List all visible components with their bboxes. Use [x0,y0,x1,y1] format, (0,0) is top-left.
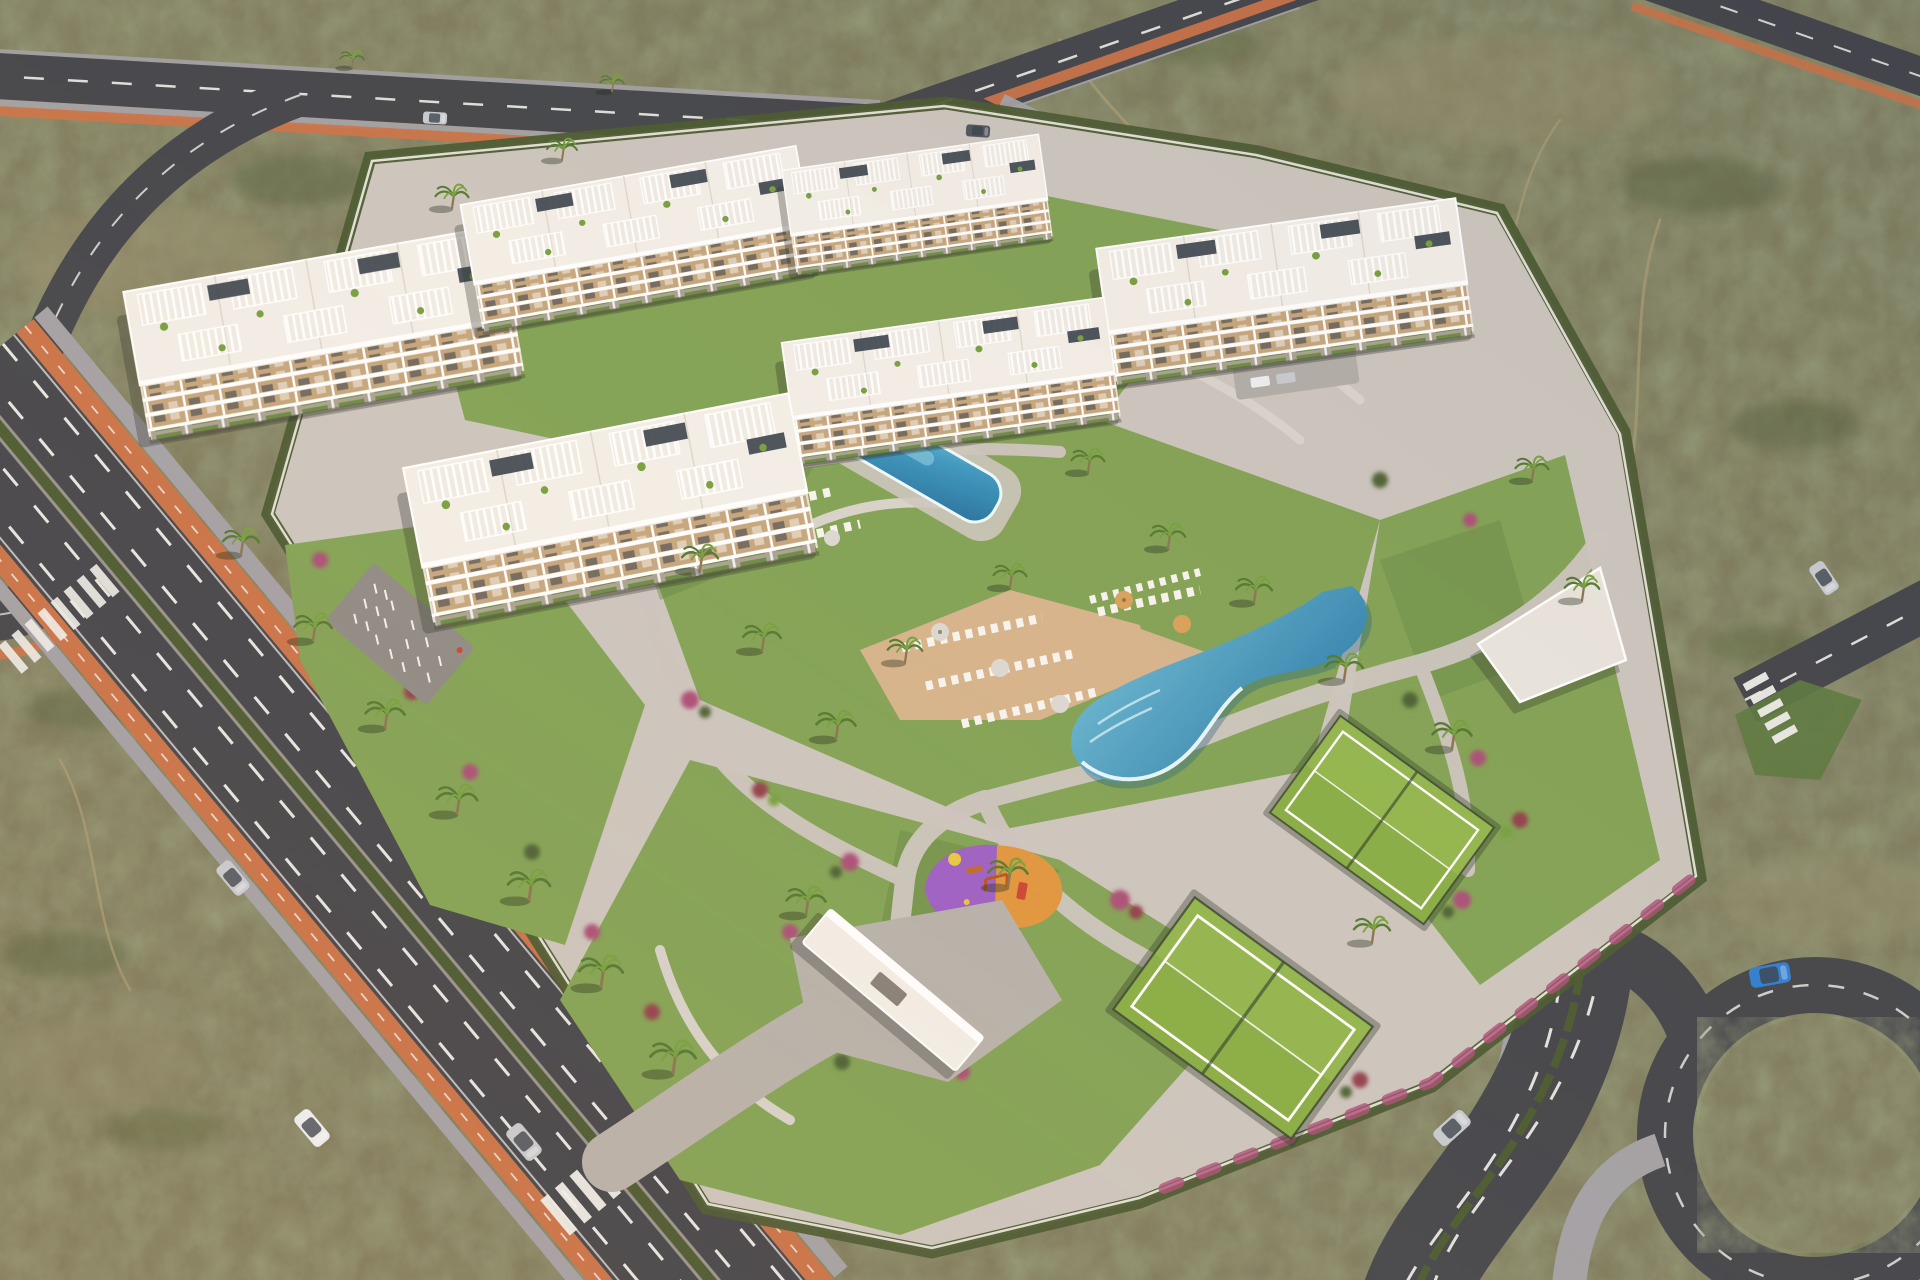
render-scene [0,0,1920,1280]
light-grade-overlay [0,0,1920,1280]
aerial-render-image [0,0,1920,1280]
